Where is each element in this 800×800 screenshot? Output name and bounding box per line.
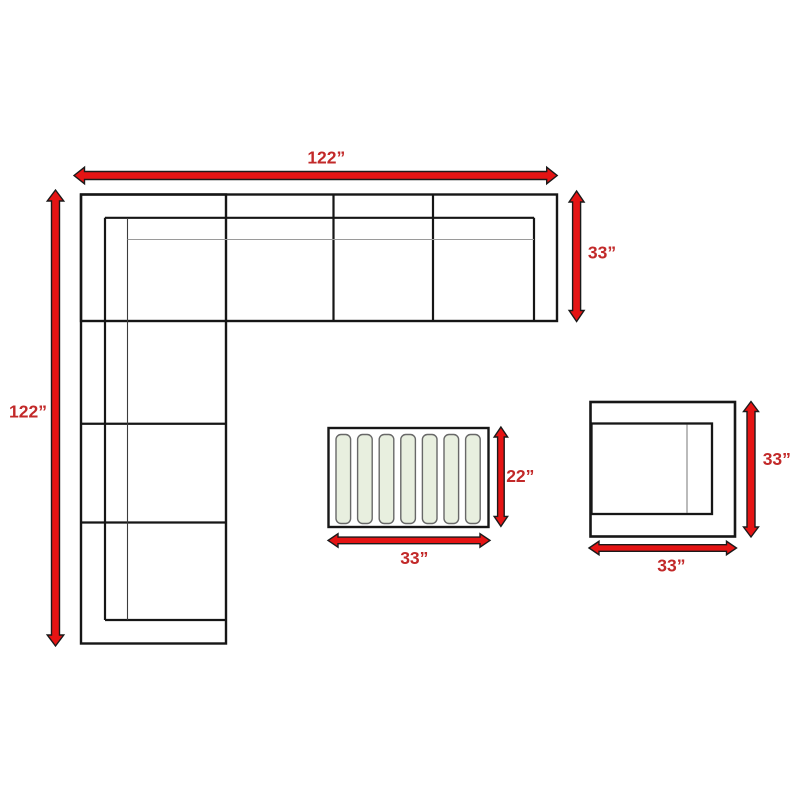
svg-text:22”: 22”: [506, 466, 534, 486]
svg-text:33”: 33”: [400, 548, 428, 568]
svg-text:33”: 33”: [763, 449, 791, 469]
svg-text:33”: 33”: [588, 242, 616, 262]
svg-text:122”: 122”: [307, 147, 345, 167]
svg-text:122”: 122”: [9, 401, 47, 421]
svg-text:33”: 33”: [657, 555, 685, 575]
